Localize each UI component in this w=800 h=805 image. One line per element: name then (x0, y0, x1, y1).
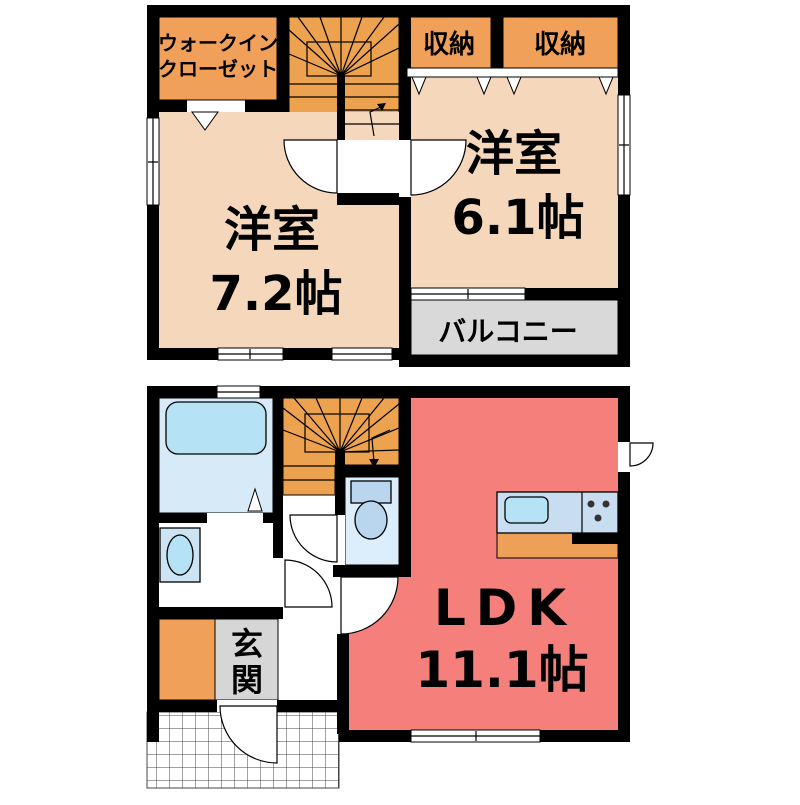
label-entrance-line1: 玄 (231, 625, 263, 663)
floorplan-svg: ウォークイン クローゼット 収納 収納 洋室 6.1帖 洋室 7.2帖 バルコニ… (0, 0, 800, 800)
closet-door-track (407, 68, 618, 77)
wall-segment (525, 288, 618, 300)
wall-segment (260, 386, 630, 398)
wall-segment (283, 348, 332, 360)
opening-bedroom-right-door (399, 140, 411, 197)
wall-segment (399, 398, 411, 567)
label-wic-line2: クローゼット (158, 57, 278, 81)
wall-segment (147, 700, 217, 712)
wall-segment (147, 205, 159, 360)
wall-segment (345, 465, 411, 477)
opening-washroom-door (273, 558, 283, 607)
wall-segment (147, 386, 159, 742)
label-storage-left: 収納 (423, 29, 475, 60)
wall-segment (618, 386, 630, 442)
door-washroom (285, 560, 332, 607)
label-ldk-size: 11.1帖 (415, 641, 588, 699)
wall-segment (491, 5, 503, 77)
wall-stair-post-1f (335, 450, 345, 515)
wall-segment (337, 634, 349, 734)
floorplan-page: ウォークイン クローゼット 収納 収納 洋室 6.1帖 洋室 7.2帖 バルコニ… (0, 0, 800, 800)
wall-segment (147, 100, 187, 112)
wall-stair-post-2f (337, 74, 345, 140)
wall-segment (540, 730, 630, 742)
label-bedroom-left-size: 7.2帖 (209, 266, 342, 322)
opening-bath-door (207, 513, 263, 523)
wall-segment (147, 607, 283, 619)
wall-segment (333, 565, 411, 577)
stove-burner (603, 501, 610, 508)
label-bedroom-right-name: 洋室 (466, 126, 562, 182)
washbasin-bowl (167, 535, 193, 575)
wall-segment (263, 513, 283, 523)
stove-burner (595, 515, 602, 522)
wall-segment (618, 195, 630, 367)
wall-segment (273, 398, 283, 519)
toilet-bowl (355, 501, 387, 539)
door-toilet (290, 515, 337, 562)
wall-segment (147, 5, 630, 17)
wall-segment (147, 513, 207, 523)
label-entrance-line2: 関 (231, 661, 263, 699)
wall-segment (618, 5, 630, 95)
stair-landing-2f (345, 140, 399, 193)
wall-segment (618, 472, 630, 742)
opening-bedroom-left-door (337, 140, 345, 193)
label-ldk-name: LDK (434, 579, 576, 637)
label-wic-line1: ウォークイン (158, 31, 278, 55)
kitchen-counter-return (572, 533, 618, 544)
opening-ldk-exterior-door (618, 442, 630, 472)
wall-segment (339, 730, 411, 742)
door-ldk-exterior (630, 443, 653, 466)
wall-segment (277, 5, 289, 112)
bathtub (166, 402, 266, 454)
wall-segment (399, 197, 411, 361)
kitchen-sink (505, 497, 548, 523)
wall-segment (273, 523, 283, 558)
label-bedroom-right-size: 6.1帖 (451, 190, 584, 246)
stove-burner (588, 501, 595, 508)
wall-segment (245, 100, 287, 112)
toilet-tank (351, 481, 391, 503)
label-balcony: バルコニー (438, 315, 577, 348)
wall-balcony-rail (399, 355, 630, 367)
label-storage-right: 収納 (534, 29, 586, 60)
wall-segment (277, 700, 349, 712)
wall-segment (392, 348, 399, 360)
label-bedroom-left-name: 洋室 (224, 202, 320, 258)
wall-segment (147, 348, 218, 360)
shoe-cabinet (159, 619, 215, 700)
